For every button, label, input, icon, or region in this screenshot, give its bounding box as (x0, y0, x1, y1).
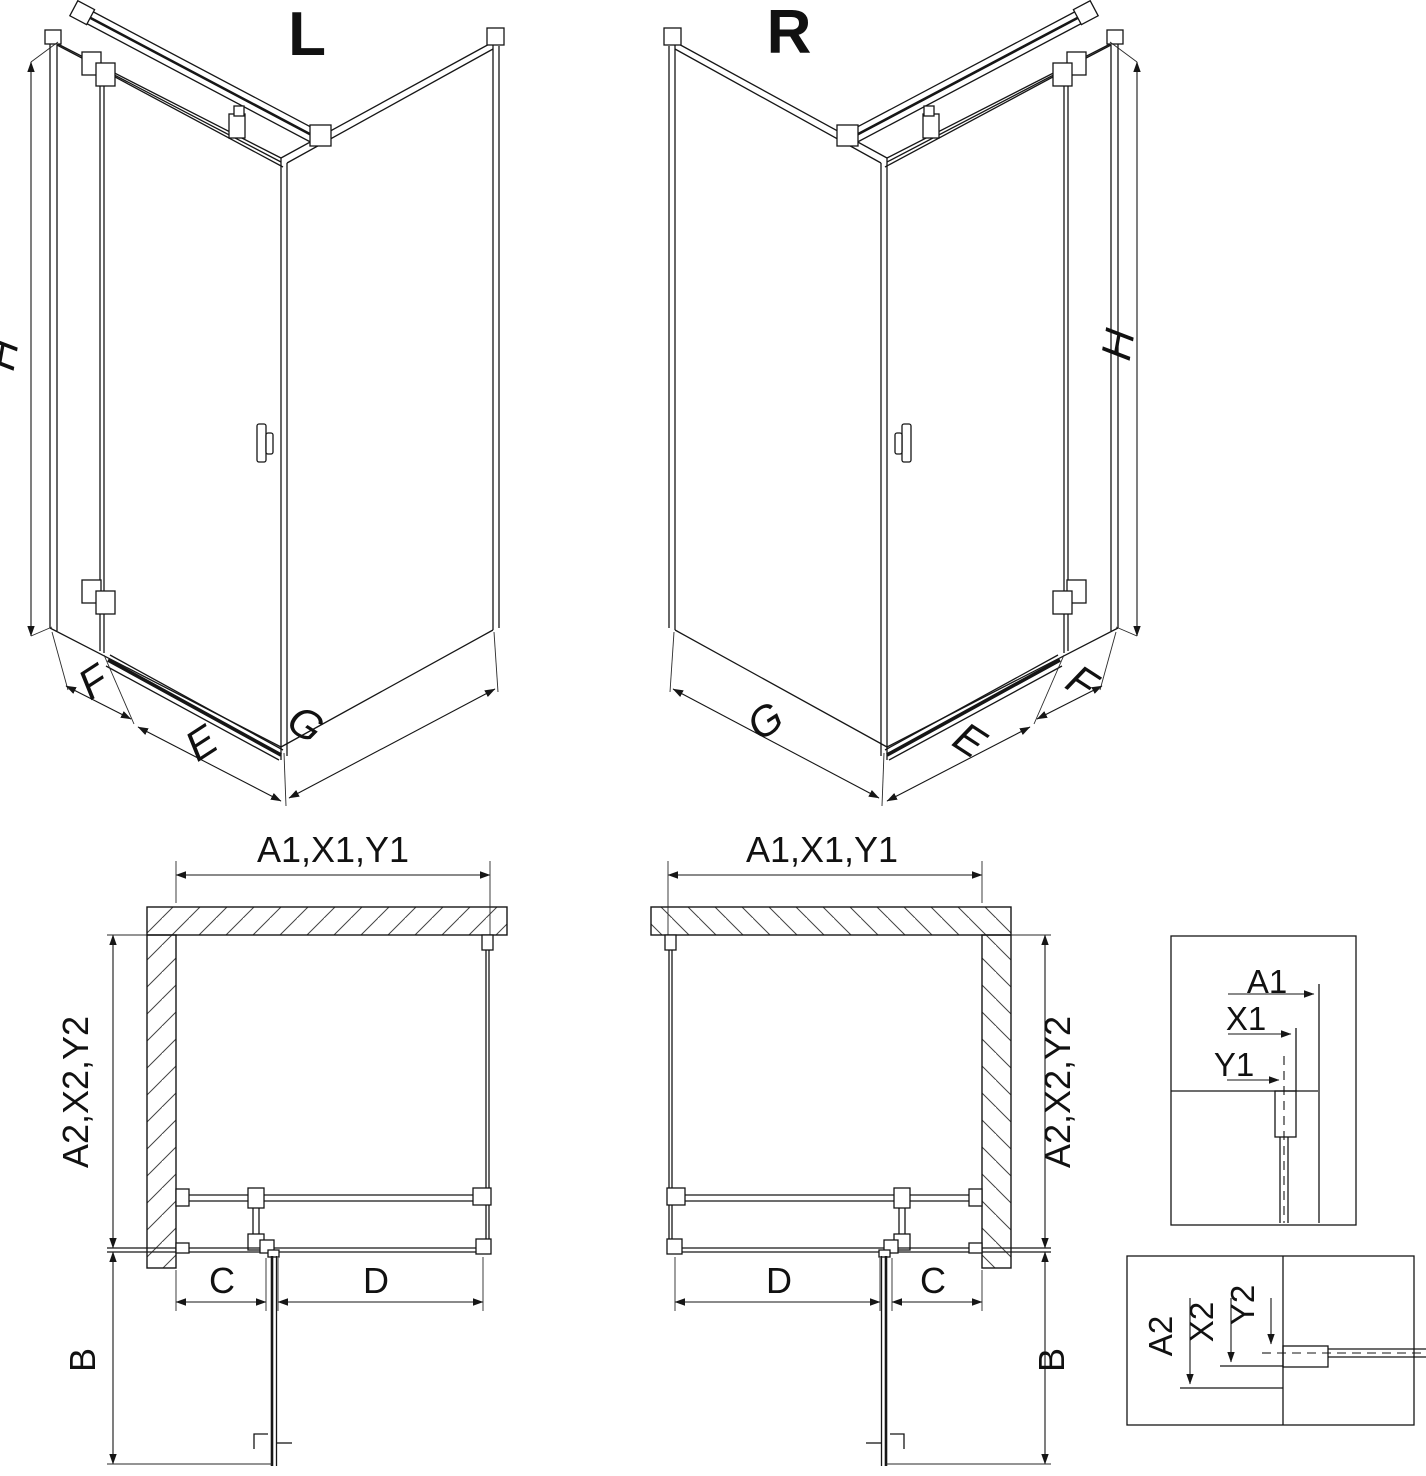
plan-left-d-label: D (363, 1260, 389, 1301)
return-dim-label-right: F (1058, 655, 1107, 710)
wall-dim-label-right: G (739, 692, 792, 749)
plan-right-c-label: C (920, 1260, 946, 1301)
iso-view-right: R H G E F (664, 0, 1144, 806)
variant-label-left: L (288, 0, 326, 69)
plan-right-d-label: D (766, 1260, 792, 1301)
plan-view-left: A1,X1,Y1 A2,X2,Y2 B C D (55, 829, 507, 1466)
detail-top-y1-label: Y1 (1214, 1046, 1254, 1083)
variant-label-right: R (767, 0, 812, 67)
iso-view-left: L H F E G (0, 0, 504, 806)
technical-drawing-sheet: L H F E G R H G E F A1,X1,Y1 A2,X2,Y2 B … (0, 0, 1426, 1476)
detail-view-bottom: A2 X2 Y2 (1127, 1256, 1426, 1425)
plan-left-depth-label: A2,X2,Y2 (55, 1016, 96, 1168)
plan-left-width-label: A1,X1,Y1 (257, 829, 409, 870)
plan-right-width-label: A1,X1,Y1 (746, 829, 898, 870)
height-dim-label-right: H (1092, 325, 1144, 364)
detail-bottom-x2-label: X2 (1183, 1302, 1220, 1342)
plan-view-right: A1,X1,Y1 A2,X2,Y2 B C D (651, 829, 1078, 1466)
plan-left-c-label: C (209, 1260, 235, 1301)
plan-right-swing-label: B (1031, 1348, 1072, 1372)
shower-enclosure-diagram: L H F E G R H G E F A1,X1,Y1 A2,X2,Y2 B … (0, 0, 1426, 1476)
height-dim-label-left: H (0, 335, 28, 374)
detail-view-top: A1 X1 Y1 (1171, 936, 1356, 1225)
detail-bottom-y2-label: Y2 (1224, 1285, 1261, 1325)
detail-top-a1-label: A1 (1247, 963, 1287, 1000)
detail-bottom-a2-label: A2 (1142, 1316, 1179, 1356)
plan-left-swing-label: B (62, 1348, 103, 1372)
door-dim-label-left: E (177, 715, 227, 770)
detail-top-x1-label: X1 (1226, 1000, 1266, 1037)
plan-right-depth-label: A2,X2,Y2 (1037, 1016, 1078, 1168)
